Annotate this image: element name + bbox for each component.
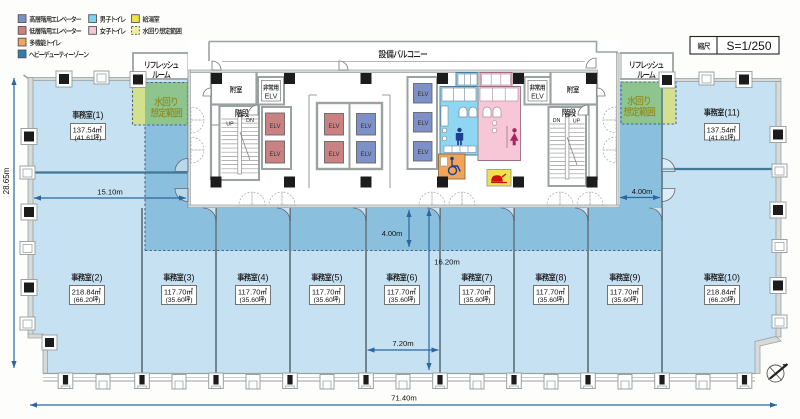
svg-text:ELV: ELV [418, 150, 429, 156]
svg-text:(9): (9) [630, 273, 641, 283]
svg-text:S=1/250: S=1/250 [726, 39, 771, 53]
svg-text:(35.60: (35.60 [314, 297, 333, 304]
svg-text:): ) [733, 135, 735, 142]
svg-text:ELV: ELV [329, 124, 340, 130]
svg-text:117.70: 117.70 [610, 288, 633, 297]
svg-text:): ) [190, 297, 192, 304]
svg-text:): ) [733, 297, 735, 304]
svg-text:UP: UP [573, 119, 581, 125]
svg-text:(2): (2) [92, 273, 103, 283]
svg-text:(41.61: (41.61 [75, 135, 94, 142]
svg-text:(3): (3) [184, 273, 195, 283]
svg-text:71.40m: 71.40m [391, 394, 417, 403]
svg-text:(6): (6) [407, 273, 418, 283]
svg-text:): ) [264, 297, 266, 304]
svg-text:28.65m: 28.65m [2, 167, 11, 194]
svg-text:(35.60: (35.60 [240, 297, 259, 304]
svg-text:ELV: ELV [531, 94, 544, 101]
svg-text:(5): (5) [332, 273, 343, 283]
svg-text:218.84: 218.84 [72, 288, 95, 297]
svg-text:4.00m: 4.00m [382, 229, 403, 238]
svg-text:(35.60: (35.60 [612, 297, 631, 304]
svg-text:16.20m: 16.20m [434, 258, 460, 267]
svg-text:117.70: 117.70 [462, 288, 485, 297]
svg-text:(35.60: (35.60 [464, 297, 483, 304]
svg-text:): ) [99, 135, 101, 142]
svg-text:ELV: ELV [270, 152, 281, 158]
svg-text:UP: UP [226, 122, 234, 128]
svg-text:(35.60: (35.60 [538, 297, 557, 304]
svg-text:(7): (7) [482, 273, 493, 283]
svg-text:117.70: 117.70 [164, 288, 187, 297]
svg-text:15.10m: 15.10m [97, 188, 123, 197]
svg-text:): ) [636, 297, 638, 304]
svg-text:DN: DN [246, 118, 254, 124]
svg-text:117.70: 117.70 [536, 288, 559, 297]
svg-text:DN: DN [553, 118, 561, 124]
svg-text:): ) [413, 297, 415, 304]
svg-text:4.00m: 4.00m [632, 187, 653, 196]
svg-text:ELV: ELV [270, 124, 281, 130]
svg-text:(4): (4) [258, 273, 269, 283]
svg-text:): ) [98, 297, 100, 304]
svg-text:7.20m: 7.20m [392, 339, 413, 348]
svg-text:): ) [488, 297, 490, 304]
svg-text:ELV: ELV [418, 121, 429, 127]
svg-text:117.70: 117.70 [387, 288, 410, 297]
svg-text:137.54: 137.54 [73, 126, 96, 135]
svg-text:): ) [338, 297, 340, 304]
svg-text:(66.20: (66.20 [709, 297, 728, 304]
svg-text:): ) [562, 297, 564, 304]
svg-text:ELV: ELV [418, 92, 429, 98]
svg-text:ELV: ELV [265, 94, 278, 101]
svg-text:(35.60: (35.60 [389, 297, 408, 304]
svg-text:(66.20: (66.20 [74, 297, 93, 304]
svg-text:218.84: 218.84 [707, 288, 730, 297]
svg-text:(8): (8) [556, 273, 567, 283]
svg-text:137.54: 137.54 [707, 126, 730, 135]
svg-text:(41.61: (41.61 [709, 135, 728, 142]
svg-text:(1): (1) [93, 110, 104, 120]
svg-text:(10): (10) [724, 273, 740, 283]
svg-text:(11): (11) [724, 108, 739, 118]
svg-text:ELV: ELV [329, 152, 340, 158]
svg-text:117.70: 117.70 [312, 288, 335, 297]
svg-text:(35.60: (35.60 [166, 297, 185, 304]
svg-text:117.70: 117.70 [238, 288, 261, 297]
svg-text:ELV: ELV [361, 124, 372, 130]
svg-text:ELV: ELV [361, 152, 372, 158]
